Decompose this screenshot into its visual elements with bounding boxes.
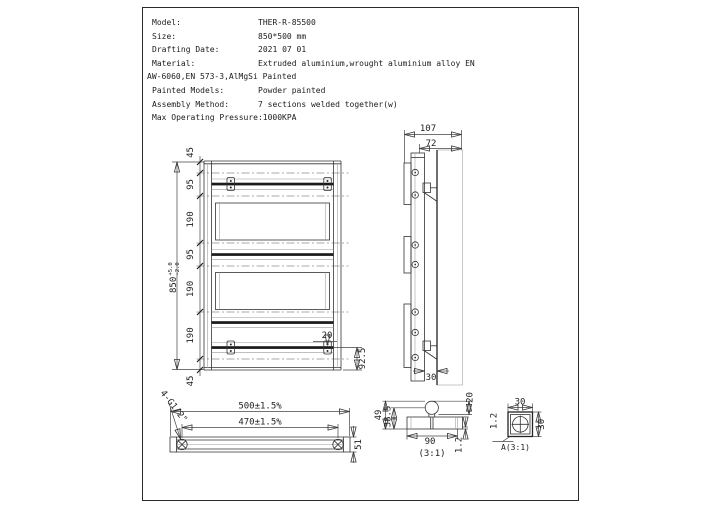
dim-seg-45-top: 45 <box>186 147 196 158</box>
detail-section-label: (3:1) <box>418 449 445 459</box>
dim-bracket-20: 20 <box>322 331 333 341</box>
dim-20-tube: 20 <box>466 392 476 403</box>
dim-seg-95b: 95 <box>186 249 196 260</box>
dim-seg-95a: 95 <box>186 179 196 190</box>
dim-92-5: 92.5 <box>358 348 368 370</box>
side-view: 107 72 30 <box>404 124 463 385</box>
dim-38-5: 38.5 <box>384 406 394 428</box>
dim-30-gap: 30 <box>426 373 437 383</box>
thread-callout: 4-G1/2" <box>158 389 189 425</box>
dim-overall-height: 850 +5.0 -2.0 <box>168 262 181 293</box>
front-view: 850 +5.0 -2.0 45 95 190 95 190 190 <box>168 147 368 386</box>
dim-470: 470±1.5% <box>238 418 282 428</box>
detail-a-view: 30 30 1.2 A(3:1) <box>490 398 548 453</box>
dim-51: 51 <box>354 439 364 450</box>
section-tubes <box>412 169 418 360</box>
dim-1-2-section: 1.2 <box>455 437 465 453</box>
dim-seg-190c: 190 <box>186 327 196 343</box>
dim-30-width: 30 <box>515 398 526 408</box>
detail-a-label: A(3:1) <box>501 443 530 452</box>
dim-107: 107 <box>420 124 436 134</box>
wall-bracket-top <box>423 183 437 201</box>
dim-49: 49 <box>374 410 384 421</box>
dim-1-2-a: 1.2 <box>490 413 500 429</box>
dim-500: 500±1.5% <box>238 402 282 412</box>
detail-section-view: 49 38.5 90 1.2 20 (3:1) <box>374 392 476 459</box>
dim-72: 72 <box>426 139 437 149</box>
dim-90: 90 <box>425 437 436 447</box>
dim-850-label: 850 <box>169 277 179 293</box>
dim-seg-190b: 190 <box>186 281 196 297</box>
bottom-view: 470±1.5% 500±1.5% 4-G1/2" 51 <box>158 389 364 463</box>
wall-bracket-bottom <box>423 341 437 359</box>
drawing-sheet: Model:THER-R-85500 Size:850*500 mm Draft… <box>0 0 720 509</box>
brick-wall <box>437 150 463 385</box>
dim-30-height: 30 <box>537 419 547 430</box>
technical-drawing: 850 +5.0 -2.0 45 95 190 95 190 190 <box>0 0 720 509</box>
dim-850-tol-upper: +5.0 <box>168 262 174 275</box>
dim-850-tol-lower: -2.0 <box>175 262 181 275</box>
dim-seg-190a: 190 <box>186 211 196 227</box>
dim-seg-45-bottom: 45 <box>186 376 196 387</box>
